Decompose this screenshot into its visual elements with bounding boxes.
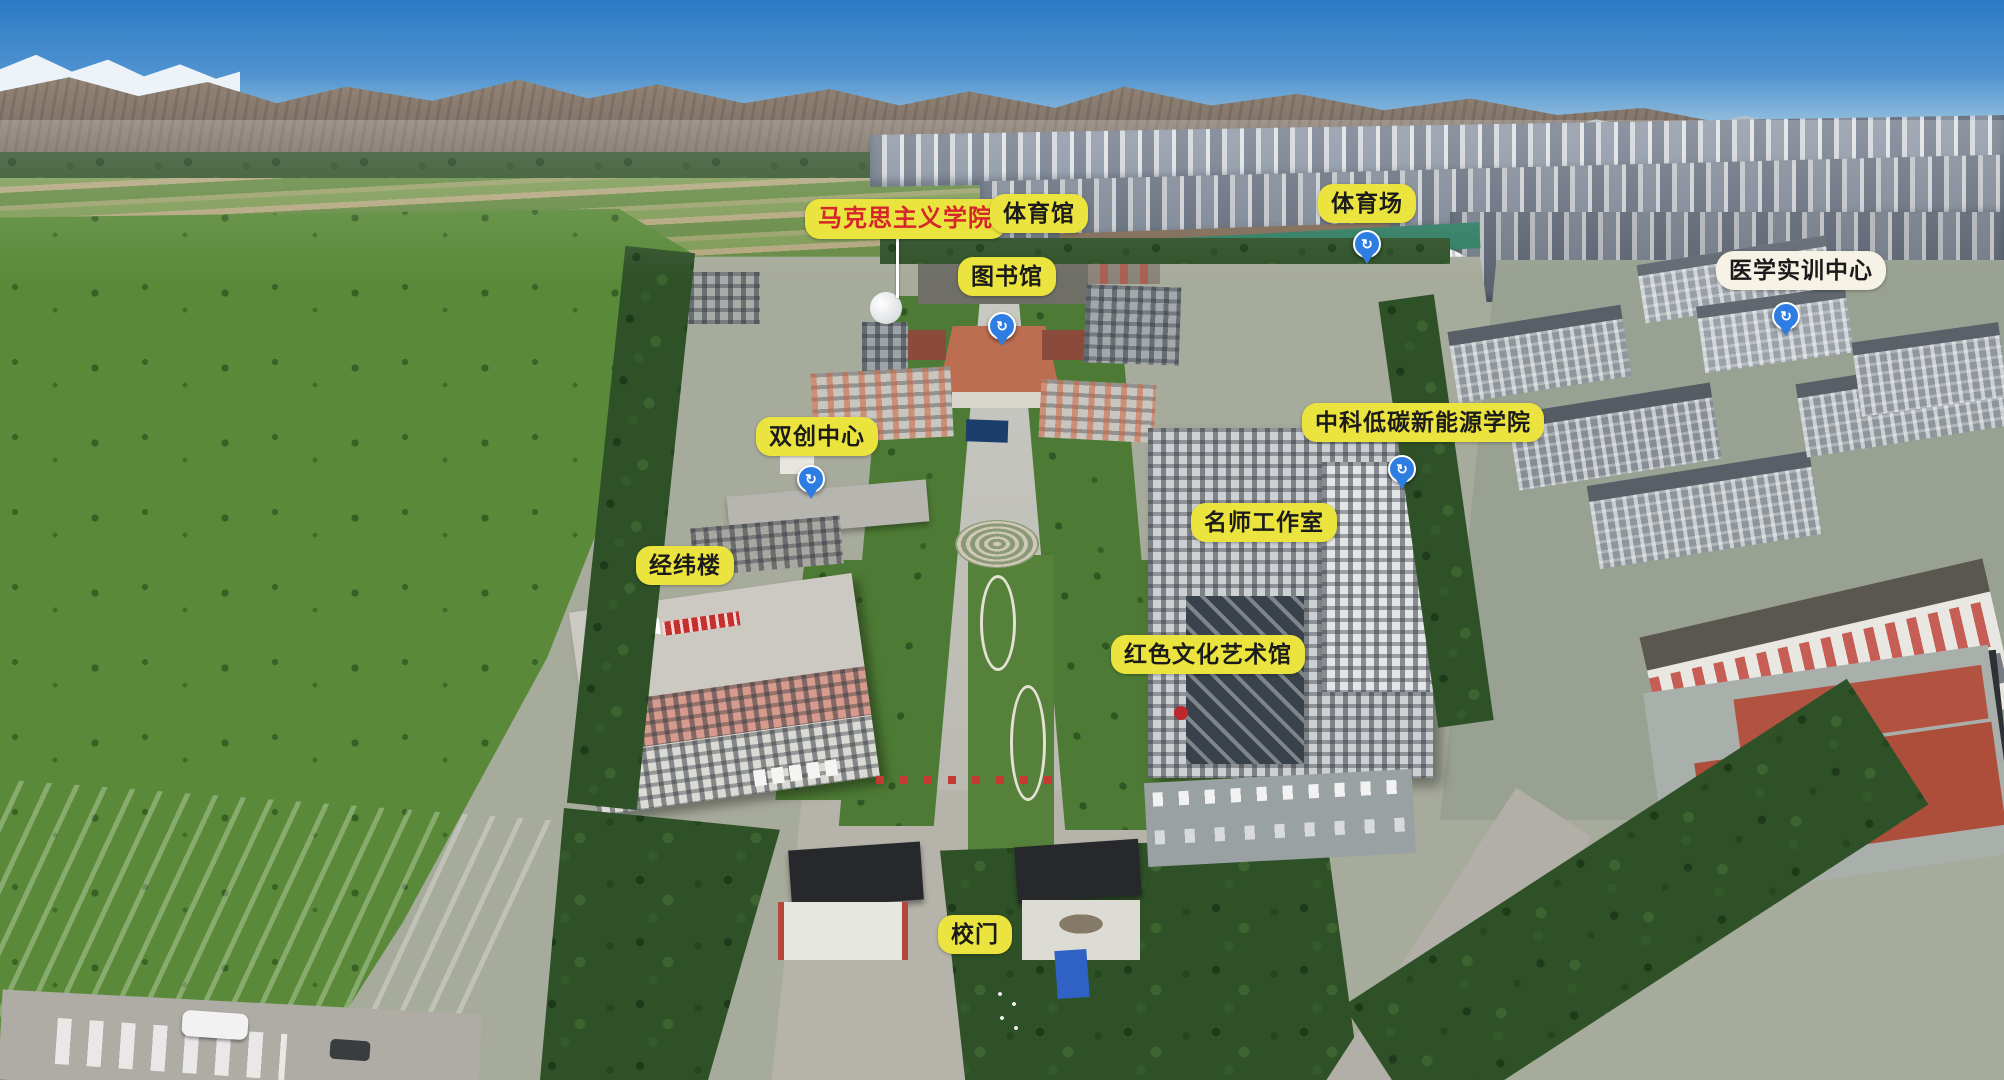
campus-aerial-panorama: ↻ ↻ ↻ ↻ ↻ 马克思主义学院 体育馆 体育场 医学实训中心 图书馆 双创中… [0,0,2004,1080]
flag-row [876,776,1056,784]
gatehouse-west [778,902,908,960]
parked-cars-row [1154,817,1406,844]
center-garden [968,555,1054,855]
panorama-pin-medical-center[interactable]: ↻ [1772,302,1800,330]
tree-grove-gate-east [940,836,1360,1080]
red-emblem [1174,706,1188,720]
art-museum-building [1148,428,1433,778]
white-car [181,1010,249,1041]
panorama-rotate-icon: ↻ [1361,237,1373,251]
label-red-culture-art-museum[interactable]: 红色文化艺术馆 [1111,635,1305,674]
panorama-rotate-icon: ↻ [1780,309,1792,323]
parked-cars-row [1152,779,1404,806]
label-low-carbon-college[interactable]: 中科低碳新能源学院 [1302,403,1544,442]
main-steps [952,392,1044,408]
reflecting-pool [966,419,1009,442]
gatehouse-west-roof [788,841,924,908]
teaching-building-east [1039,379,1157,443]
label-gymnasium[interactable]: 体育馆 [990,194,1088,233]
label-leader-line [896,236,899,298]
label-innovation-center[interactable]: 双创中心 [756,417,878,456]
dark-car [329,1039,370,1062]
panorama-rotate-icon: ↻ [1396,462,1408,476]
label-school-gate[interactable]: 校门 [938,915,1012,954]
red-pavilion-east [1042,330,1086,360]
spiral-plaza [955,520,1039,568]
blue-canopy [1054,949,1089,999]
label-stadium[interactable]: 体育场 [1318,184,1416,223]
panorama-pin-low-carbon-college[interactable]: ↻ [1388,455,1416,483]
label-medical-training-center[interactable]: 医学实训中心 [1716,251,1886,290]
label-master-teacher-studio[interactable]: 名师工作室 [1191,503,1337,542]
glass-facade [1186,596,1304,764]
label-jingwei-building[interactable]: 经纬楼 [636,546,734,585]
gatehouse-east-roof [1014,839,1142,904]
label-library[interactable]: 图书馆 [958,257,1056,296]
garden-path-loop [980,575,1016,671]
panorama-pin-stadium[interactable]: ↻ [1353,230,1381,258]
panorama-pin-library[interactable]: ↻ [988,312,1016,340]
campus-building [1084,284,1182,365]
panorama-rotate-icon: ↻ [996,319,1008,333]
parking-lot [1144,769,1416,867]
label-marxism-college[interactable]: 马克思主义学院 [805,199,1006,239]
red-pavilion-west [902,330,946,360]
panorama-rotate-icon: ↻ [805,472,817,486]
footprint-marks [994,988,1024,1032]
panorama-pin-innovation-center[interactable]: ↻ [797,465,825,493]
